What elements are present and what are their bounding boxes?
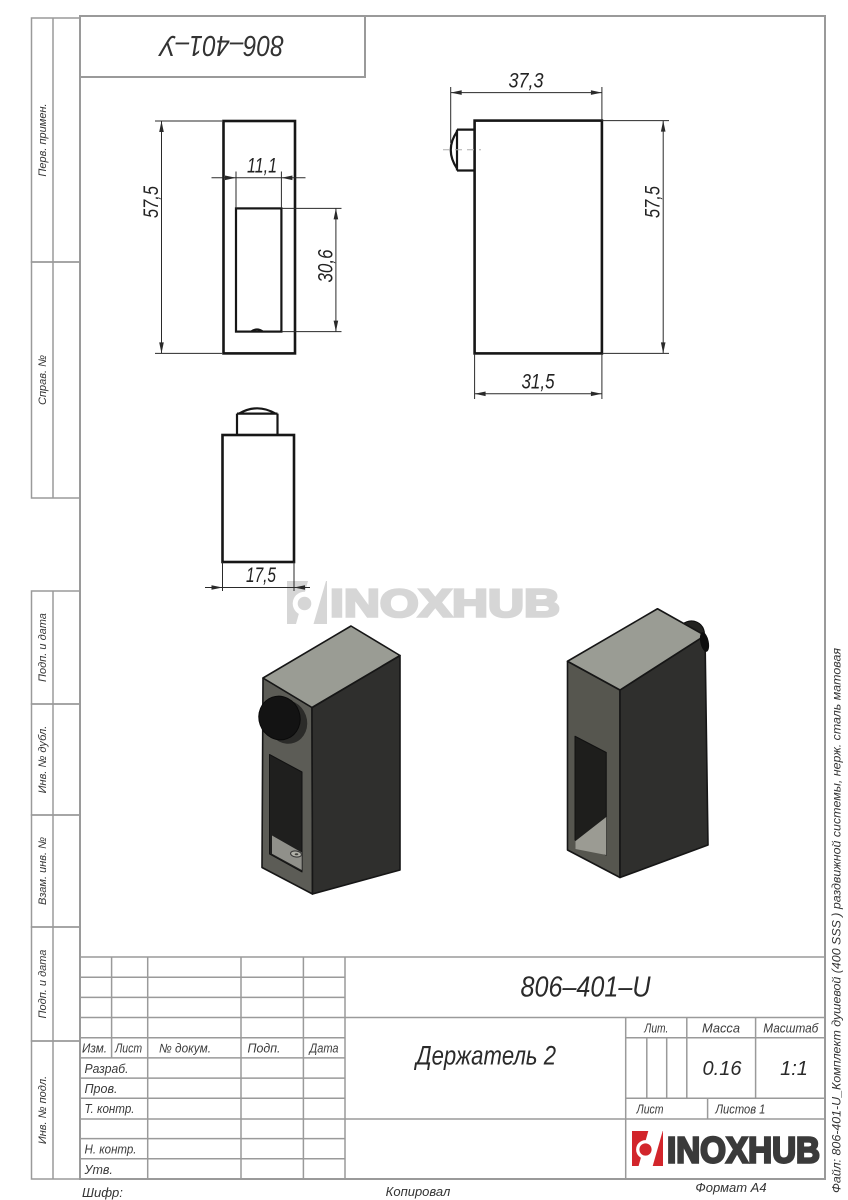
svg-text:Лист: Лист <box>636 1103 664 1117</box>
svg-text:INOXHUB: INOXHUB <box>667 1130 820 1171</box>
svg-text:Держатель 2: Держатель 2 <box>414 1041 556 1071</box>
svg-text:30,6: 30,6 <box>314 249 337 282</box>
svg-text:11,1: 11,1 <box>247 155 277 178</box>
svg-text:Масса: Масса <box>702 1022 740 1036</box>
svg-text:806–401–У: 806–401–У <box>158 29 284 61</box>
svg-text:Разраб.: Разраб. <box>85 1062 129 1076</box>
svg-text:Подп. и дата: Подп. и дата <box>37 613 49 682</box>
svg-text:Формат А4: Формат А4 <box>695 1180 766 1195</box>
svg-text:1:1: 1:1 <box>780 1058 808 1080</box>
svg-text:Справ. №: Справ. № <box>37 355 49 405</box>
svg-text:Пров.: Пров. <box>85 1082 118 1096</box>
svg-text:Взам. инв. №: Взам. инв. № <box>37 837 49 905</box>
svg-text:Утв.: Утв. <box>84 1163 113 1177</box>
svg-text:57,5: 57,5 <box>642 186 665 218</box>
svg-text:Листов 1: Листов 1 <box>715 1103 766 1117</box>
svg-text:Лит.: Лит. <box>643 1022 668 1036</box>
svg-text:Изм.: Изм. <box>82 1042 107 1056</box>
svg-text:Н. контр.: Н. контр. <box>85 1143 137 1157</box>
svg-text:37,3: 37,3 <box>509 69 544 92</box>
svg-text:№ докум.: № докум. <box>159 1042 211 1056</box>
svg-text:Файл: 806-401-U_Комплект душев: Файл: 806-401-U_Комплект душевой (400 SS… <box>832 648 844 1193</box>
svg-text:Подп.: Подп. <box>248 1042 281 1056</box>
svg-text:Инв. № дубл.: Инв. № дубл. <box>37 726 49 794</box>
svg-text:0.16: 0.16 <box>703 1058 743 1080</box>
svg-text:Масштаб: Масштаб <box>763 1022 819 1036</box>
svg-text:INOXHUB: INOXHUB <box>330 583 560 626</box>
svg-text:31,5: 31,5 <box>522 371 555 394</box>
svg-text:Перв. примен.: Перв. примен. <box>37 103 49 176</box>
svg-text:806–401–U: 806–401–U <box>521 972 652 1004</box>
svg-text:Шифр:: Шифр: <box>82 1185 123 1200</box>
svg-text:17,5: 17,5 <box>246 564 276 587</box>
svg-text:Лист: Лист <box>114 1042 142 1056</box>
svg-text:Копировал: Копировал <box>386 1184 451 1199</box>
svg-text:Т. контр.: Т. контр. <box>85 1102 135 1116</box>
svg-text:Подп. и дата: Подп. и дата <box>37 950 49 1019</box>
svg-text:57,5: 57,5 <box>140 186 163 218</box>
svg-text:Дата: Дата <box>308 1042 339 1056</box>
svg-text:Инв. № подл.: Инв. № подл. <box>37 1076 49 1144</box>
